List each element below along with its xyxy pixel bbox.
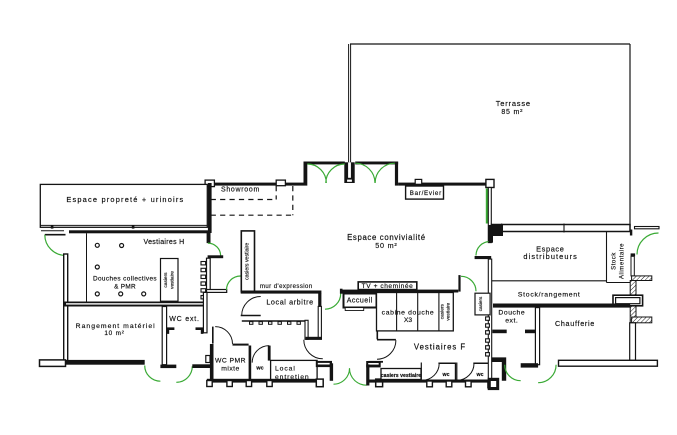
svg-text:Accueil: Accueil [347,298,373,305]
svg-text:Espace propreté + urinoirs: Espace propreté + urinoirs [66,195,184,204]
svg-text:Vestiaires F: Vestiaires F [414,342,466,351]
svg-text:ext.: ext. [505,318,518,325]
svg-text:Alimentaire: Alimentaire [620,243,626,279]
svg-text:TV + cheminée: TV + cheminée [362,283,414,290]
svg-text:vestiaire: vestiaire [170,271,176,289]
svg-text:distributeurs: distributeurs [523,252,578,261]
svg-text:casiers vestiaire: casiers vestiaire [381,373,421,379]
svg-text:Terrasse: Terrasse [496,99,531,108]
svg-text:wc: wc [442,372,450,378]
svg-text:X3: X3 [404,317,413,324]
svg-text:casiers vestiaire: casiers vestiaire [245,243,251,280]
svg-text:Stock: Stock [612,252,618,270]
svg-text:Local: Local [275,365,296,372]
svg-text:mixte: mixte [221,365,240,372]
svg-text:casiers: casiers [163,272,169,288]
svg-text:& PMR: & PMR [114,284,136,291]
svg-text:WC PMR: WC PMR [215,357,246,364]
svg-text:Chaufferie: Chaufferie [555,319,595,328]
svg-text:50 m²: 50 m² [375,241,397,250]
svg-text:WC ext.: WC ext. [169,316,200,323]
svg-text:Bar/Evier: Bar/Evier [410,190,442,197]
svg-text:Vestiaires H: Vestiaires H [144,239,185,246]
svg-text:Stock/rangement: Stock/rangement [518,292,581,299]
svg-text:vestiaire: vestiaire [446,302,452,320]
svg-text:Douche: Douche [498,309,525,316]
svg-text:Douches collectives: Douches collectives [93,276,157,283]
svg-text:mur d'expression: mur d'expression [260,284,313,290]
svg-text:Local arbitre: Local arbitre [266,298,313,307]
svg-text:10 m²: 10 m² [104,330,124,337]
svg-text:casiers: casiers [478,296,483,311]
svg-text:wc: wc [255,365,263,371]
svg-text:wc: wc [476,372,484,378]
svg-text:casiers: casiers [440,304,446,320]
svg-text:Showroom: Showroom [221,187,260,194]
svg-text:cabine douche: cabine douche [382,310,435,317]
svg-text:85 m²: 85 m² [501,109,523,116]
